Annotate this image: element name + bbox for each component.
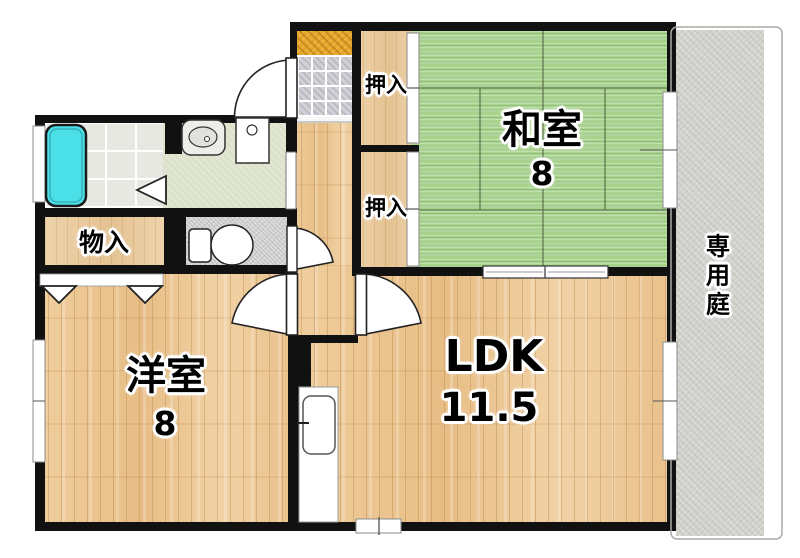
youshitsu-door-icon [232,274,298,335]
label-youshitsu-size: 8 [154,407,177,441]
window [33,126,45,462]
label-youshitsu: 洋室 [126,356,206,398]
ldk-door-icon [356,274,422,335]
bathtub-icon [46,125,86,206]
label-garden: 専用庭 [703,234,728,321]
refrigerator-icon [297,387,338,522]
storage-folding-doors-icon [40,274,163,303]
label-washitsu-size: 8 [531,157,554,191]
sliding-door [402,33,419,266]
bathroom-folding-door-icon [137,176,166,204]
label-ldk: LDK [445,334,544,380]
label-storage: 物入 [79,230,129,256]
window [356,517,401,535]
toilet-door-icon [287,226,333,272]
floorplan: 和室 8 LDK 11.5 洋室 8 押入 押入 物入 専用庭 [0,0,800,558]
washer-pan-icon [236,118,269,163]
sink-icon [182,120,225,155]
label-washitsu: 和室 [502,110,582,152]
label-closet-lower: 押入 [365,198,407,220]
washroom-door [286,152,296,209]
toilet-icon [189,225,253,265]
label-ldk-size: 11.5 [440,388,539,430]
entrance-door-icon [235,58,298,118]
sliding-door [483,266,608,278]
label-closet-upper: 押入 [365,75,407,97]
